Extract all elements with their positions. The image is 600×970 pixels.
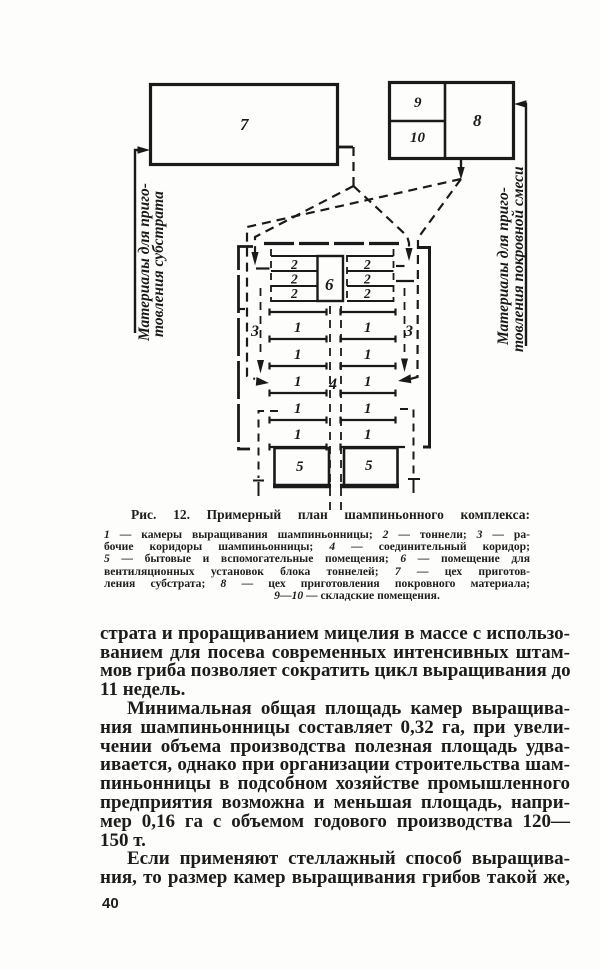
svg-text:7: 7 [240,115,250,134]
svg-text:1: 1 [364,347,372,363]
svg-text:1: 1 [364,320,372,336]
svg-text:2: 2 [290,286,298,301]
svg-text:3: 3 [250,323,259,340]
svg-text:1: 1 [294,374,302,390]
svg-text:6: 6 [325,275,334,294]
svg-text:10: 10 [410,130,426,146]
svg-text:2: 2 [290,257,298,272]
svg-text:4: 4 [328,376,337,393]
svg-text:1: 1 [294,320,302,336]
svg-text:товления покровной смеси: товления покровной смеси [510,166,527,352]
svg-text:1: 1 [294,427,302,443]
svg-text:2: 2 [290,272,298,287]
svg-text:2: 2 [363,272,371,287]
svg-text:5: 5 [296,459,304,475]
svg-text:8: 8 [473,111,482,130]
svg-text:1: 1 [364,374,372,390]
svg-text:2: 2 [363,286,371,301]
svg-text:2: 2 [363,257,371,272]
svg-text:1: 1 [364,401,372,417]
svg-text:9: 9 [414,95,422,111]
svg-text:1: 1 [294,401,302,417]
svg-text:1: 1 [364,427,372,443]
svg-text:1: 1 [294,347,302,363]
svg-text:товления субстрата: товления субстрата [150,191,167,337]
svg-text:5: 5 [365,458,373,474]
